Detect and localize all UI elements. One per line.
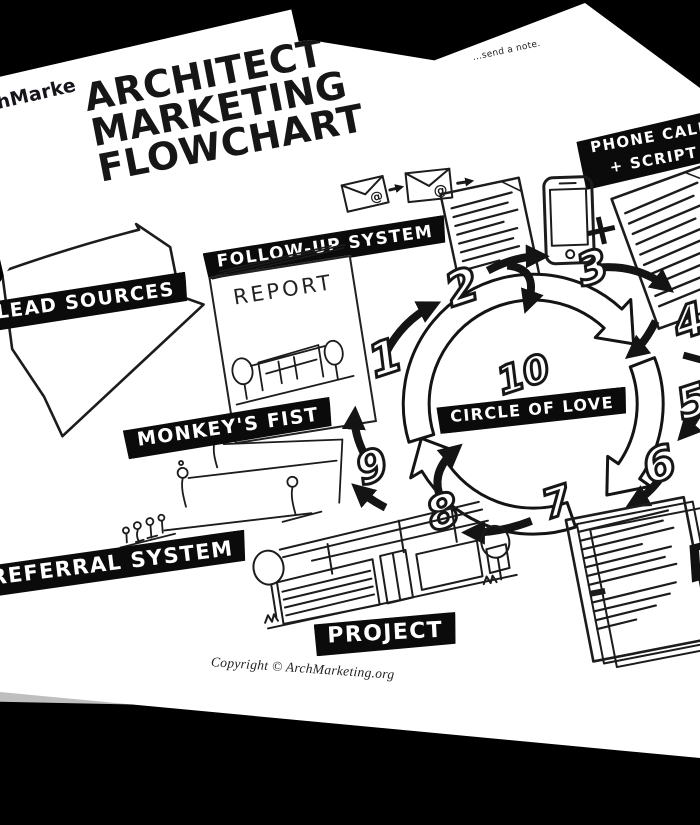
- document-stack-icon: [564, 490, 700, 685]
- envelope-icon: @: [342, 176, 389, 212]
- back-page-brand-fragment: ArchMarke: [0, 74, 78, 122]
- scene: { "scene": { "background": "#000000", "p…: [0, 0, 700, 800]
- flowchart-page: ARCHITECT MARKETING FLOWCHART @ @ FOLLOW…: [0, 0, 700, 800]
- label-text: PROJECT: [327, 618, 444, 649]
- at-symbol: @: [369, 189, 385, 207]
- back-page-note-fragment: ...send a note.: [472, 39, 542, 63]
- page-content: ARCHITECT MARKETING FLOWCHART @ @ FOLLOW…: [0, 0, 700, 816]
- copyright-line: Copyright © ArchMarketing.org: [210, 654, 394, 683]
